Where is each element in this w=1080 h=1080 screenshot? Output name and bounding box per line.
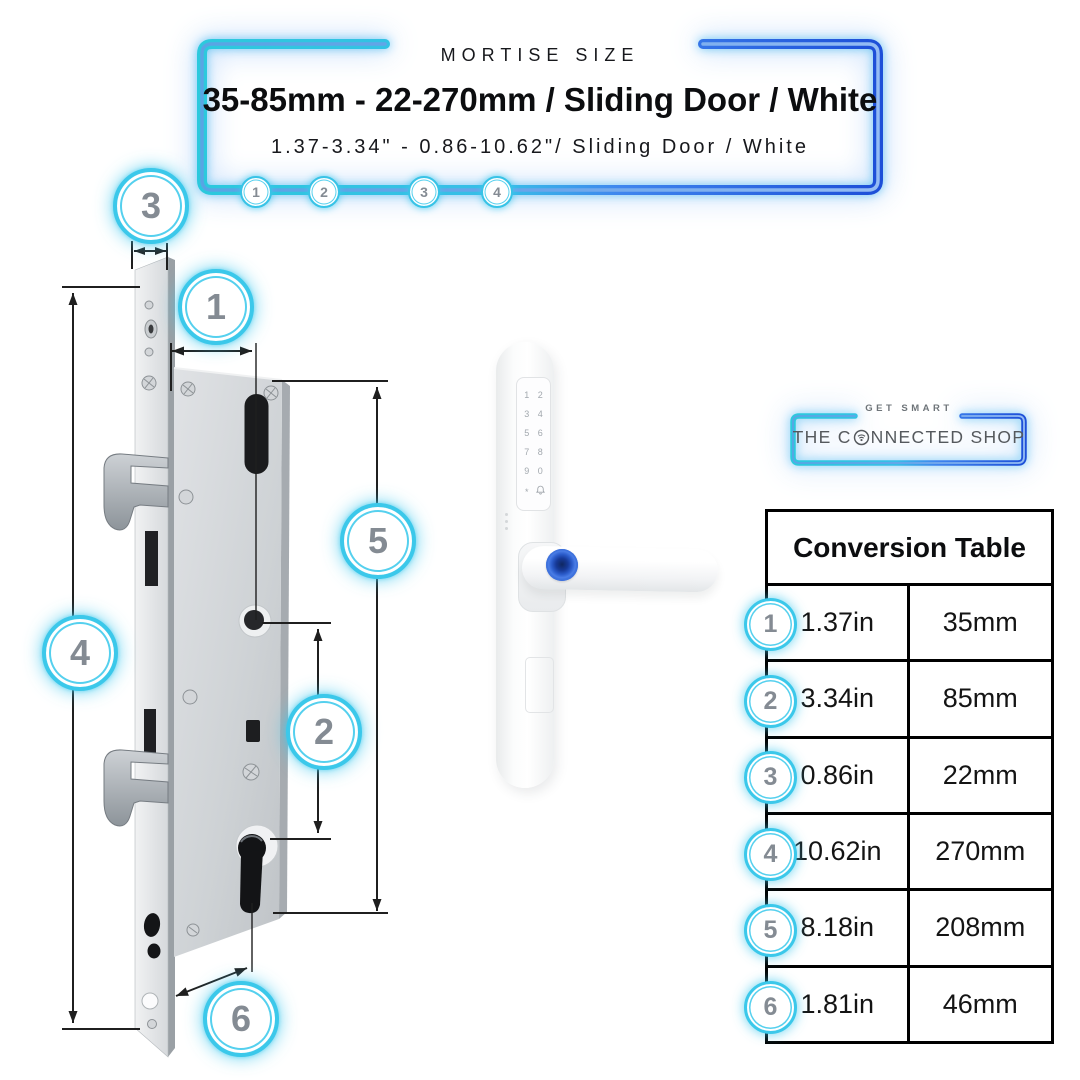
row-number: 3 (764, 765, 778, 790)
table-row: 8.18in 208mm (768, 891, 1051, 967)
table-marker-4: 4 (744, 828, 797, 881)
row-number: 6 (764, 995, 778, 1020)
table-row: 1.81in 46mm (768, 968, 1051, 1041)
mm-cell: 85mm (910, 662, 1052, 735)
table-marker-5: 5 (744, 904, 797, 957)
table-row: 1.37in 35mm (768, 586, 1051, 662)
table-row: 3.34in 85mm (768, 662, 1051, 738)
callout-2: 2 (286, 694, 362, 770)
mm-cell: 208mm (910, 891, 1052, 964)
brand-neon-frame (0, 0, 1080, 500)
mm-cell: 22mm (910, 739, 1052, 812)
callout-number: 2 (314, 714, 334, 750)
infographic-canvas: MORTISE SIZE 35-85mm - 22-270mm / Slidin… (0, 0, 1080, 1080)
row-number: 5 (764, 918, 778, 943)
table-marker-3: 3 (744, 751, 797, 804)
hook-slot-upper (145, 531, 158, 586)
callout-number: 6 (231, 1001, 251, 1037)
table-marker-6: 6 (744, 981, 797, 1034)
table-marker-2: 2 (744, 675, 797, 728)
row-number: 4 (764, 842, 778, 867)
hook-slot-lower (144, 709, 156, 755)
brand-name-prefix: THE C (793, 427, 852, 448)
spindle-hole (246, 720, 260, 742)
brand-tagline: GET SMART (793, 403, 1025, 414)
wifi-icon (853, 429, 870, 446)
callout-5: 5 (340, 503, 416, 579)
callout-number: 5 (368, 523, 388, 559)
brand-name-suffix: NNECTED SHOP (871, 427, 1026, 448)
row-number: 1 (764, 612, 778, 637)
row-number: 2 (764, 689, 778, 714)
callout-6: 6 (203, 981, 279, 1057)
lock-follower (239, 605, 271, 637)
conversion-table: Conversion Table 1.37in 35mm 3.34in 85mm… (765, 509, 1054, 1044)
brand-name: THE C NNECTED SHOP (768, 427, 1050, 448)
mm-cell: 35mm (910, 586, 1052, 659)
callout-number: 4 (70, 635, 90, 671)
table-row: 0.86in 22mm (768, 739, 1051, 815)
mm-cell: 46mm (910, 968, 1052, 1041)
fingerprint-sensor (546, 549, 578, 581)
table-row: 10.62in 270mm (768, 815, 1051, 891)
mm-cell: 270mm (910, 815, 1052, 888)
callout-4: 4 (42, 615, 118, 691)
table-title: Conversion Table (768, 512, 1051, 586)
table-marker-1: 1 (744, 598, 797, 651)
key-cover-panel (525, 657, 554, 713)
indicator-dots (505, 513, 508, 530)
